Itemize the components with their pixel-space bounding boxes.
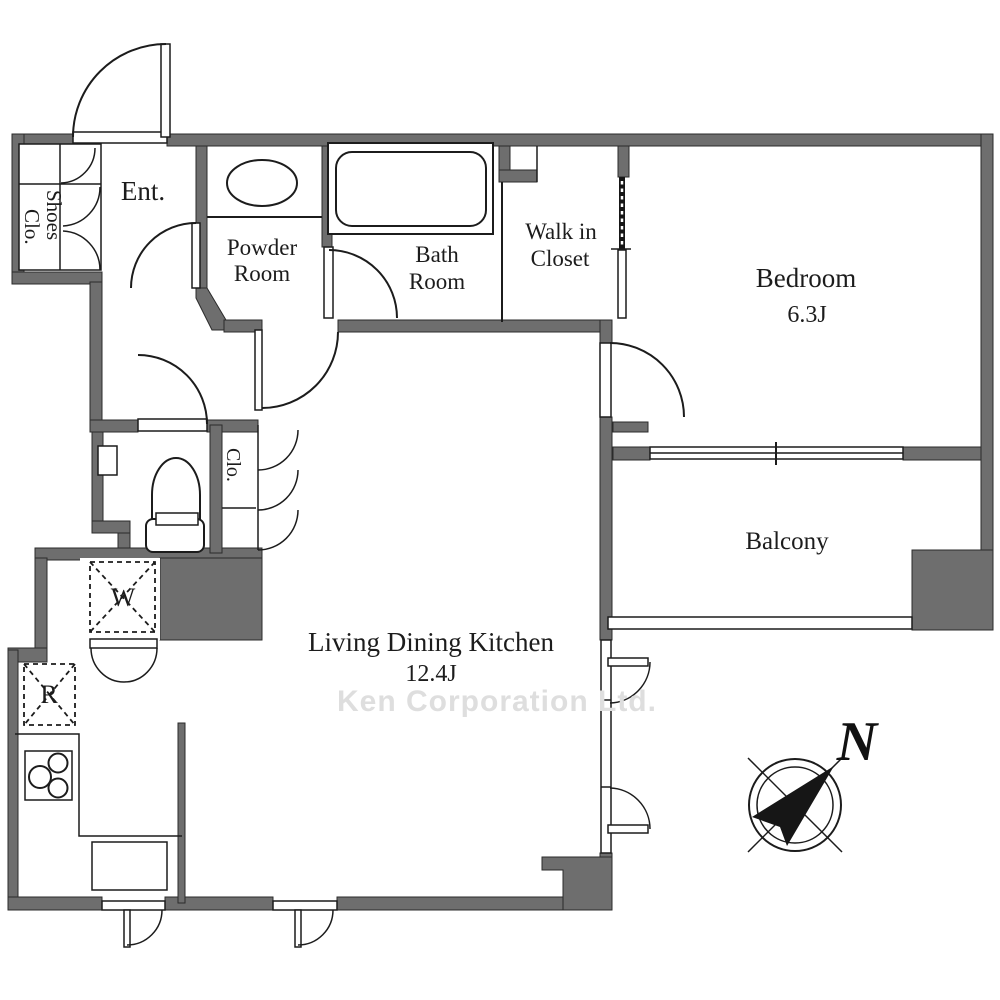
bath-room-label-line2: Room bbox=[409, 269, 465, 294]
door-leaf bbox=[295, 910, 301, 947]
window-swing-arc bbox=[610, 788, 650, 829]
wall-segment bbox=[90, 282, 102, 425]
wall-pillar bbox=[912, 550, 993, 630]
entrance-label: Ent. bbox=[121, 176, 165, 206]
wall-segment bbox=[338, 320, 600, 332]
door-leaf bbox=[192, 223, 200, 288]
door-swing-arc bbox=[262, 332, 338, 408]
door-leaf bbox=[255, 330, 262, 410]
bedroom-label: Bedroom bbox=[756, 263, 857, 293]
toilet-bowl bbox=[152, 458, 200, 521]
floor-plan: Ken Corporation Ltd. Ent. Shoes Clo. Pow… bbox=[0, 0, 1000, 1000]
window-leaf bbox=[608, 658, 648, 666]
floor-plan-page: Ken Corporation Ltd. Ent. Shoes Clo. Pow… bbox=[0, 0, 1000, 1000]
door-swing-arc bbox=[73, 44, 166, 137]
wall-segment bbox=[12, 272, 102, 284]
door-sill bbox=[90, 639, 157, 648]
door-swing-arc bbox=[91, 648, 124, 682]
door-swing-arc bbox=[258, 470, 298, 510]
bathtub bbox=[336, 152, 486, 226]
entrance-door bbox=[73, 44, 170, 143]
door-leaf bbox=[324, 247, 333, 318]
balcony-sliding-window bbox=[650, 442, 903, 465]
compass-needle bbox=[752, 766, 834, 846]
door-swing-arc bbox=[258, 430, 298, 470]
south-door-right bbox=[273, 901, 337, 947]
door-leaf bbox=[124, 910, 130, 947]
wall-segment bbox=[167, 134, 981, 146]
walk-in-closet-label-line1: Walk in bbox=[525, 219, 597, 244]
wall-segment bbox=[499, 170, 537, 182]
closet-label: Clo. bbox=[222, 448, 244, 482]
compass: N bbox=[748, 711, 880, 852]
kitchen-sink-counter bbox=[92, 842, 167, 890]
door-sill bbox=[102, 901, 165, 910]
ldk-size-label: 12.4J bbox=[405, 661, 456, 687]
balcony-railing bbox=[608, 617, 912, 629]
wall-segment bbox=[613, 447, 650, 460]
washer-label: W bbox=[111, 583, 136, 612]
wall-segment bbox=[178, 723, 185, 903]
powder-room-label-line1: Powder bbox=[227, 235, 298, 260]
door-swing-arc bbox=[298, 910, 333, 945]
door-swing-arc bbox=[329, 250, 397, 318]
window-leaf bbox=[608, 825, 648, 833]
door-swing-arc bbox=[258, 510, 298, 550]
powder-room-label-line2: Room bbox=[234, 261, 290, 286]
ldk-label: Living Dining Kitchen bbox=[308, 627, 554, 657]
wall-segment bbox=[600, 417, 612, 640]
walk-in-closet-door bbox=[611, 177, 631, 318]
door-leaf bbox=[161, 44, 170, 137]
door-swing-arc bbox=[138, 355, 207, 424]
wall-segment bbox=[210, 425, 222, 553]
balcony-label: Balcony bbox=[745, 528, 829, 555]
wall-segment bbox=[35, 558, 47, 650]
wall-segment bbox=[8, 897, 102, 910]
wall-segment bbox=[613, 422, 648, 432]
wall-segment bbox=[92, 521, 130, 533]
wall-segment bbox=[8, 650, 18, 910]
north-label: N bbox=[836, 711, 880, 773]
watermark: Ken Corporation Ltd. bbox=[337, 685, 657, 718]
hall-closet bbox=[222, 425, 298, 550]
door-leaf bbox=[618, 250, 626, 318]
door-sill bbox=[273, 901, 337, 910]
refrigerator-label: R bbox=[40, 680, 58, 709]
shoes-closet-label-line1: Shoes bbox=[42, 190, 66, 240]
south-door-left bbox=[102, 901, 165, 947]
wash-basin bbox=[227, 160, 297, 206]
window-frame bbox=[601, 640, 611, 853]
walk-in-closet-label-line2: Closet bbox=[531, 246, 590, 271]
bedroom-size-label: 6.3J bbox=[787, 302, 826, 328]
wall-segment bbox=[90, 420, 138, 432]
bath-room-label-line1: Bath bbox=[415, 242, 459, 267]
ldk-east-windows bbox=[601, 640, 650, 853]
kitchen-fixtures bbox=[15, 734, 182, 890]
wall-segment bbox=[903, 447, 981, 460]
door-swing-arc bbox=[127, 910, 162, 945]
door-sill bbox=[600, 343, 611, 417]
wall-segment bbox=[600, 320, 612, 343]
shelf bbox=[98, 446, 117, 475]
door-sill bbox=[73, 132, 167, 143]
door-swing-arc bbox=[124, 648, 157, 682]
wall-chamfer bbox=[196, 288, 226, 330]
wall-pillar bbox=[160, 558, 262, 640]
toilet-lid bbox=[156, 513, 198, 525]
wall-segment bbox=[618, 146, 629, 177]
washer-space bbox=[80, 558, 160, 682]
shoes-closet-label-line2: Clo. bbox=[20, 209, 44, 245]
door-sill bbox=[138, 419, 207, 431]
door-swing-arc bbox=[131, 223, 196, 288]
stove bbox=[25, 751, 72, 800]
ldk-entry-door bbox=[255, 330, 338, 410]
bedroom-door bbox=[600, 343, 684, 417]
door-swing-arc bbox=[610, 343, 684, 417]
